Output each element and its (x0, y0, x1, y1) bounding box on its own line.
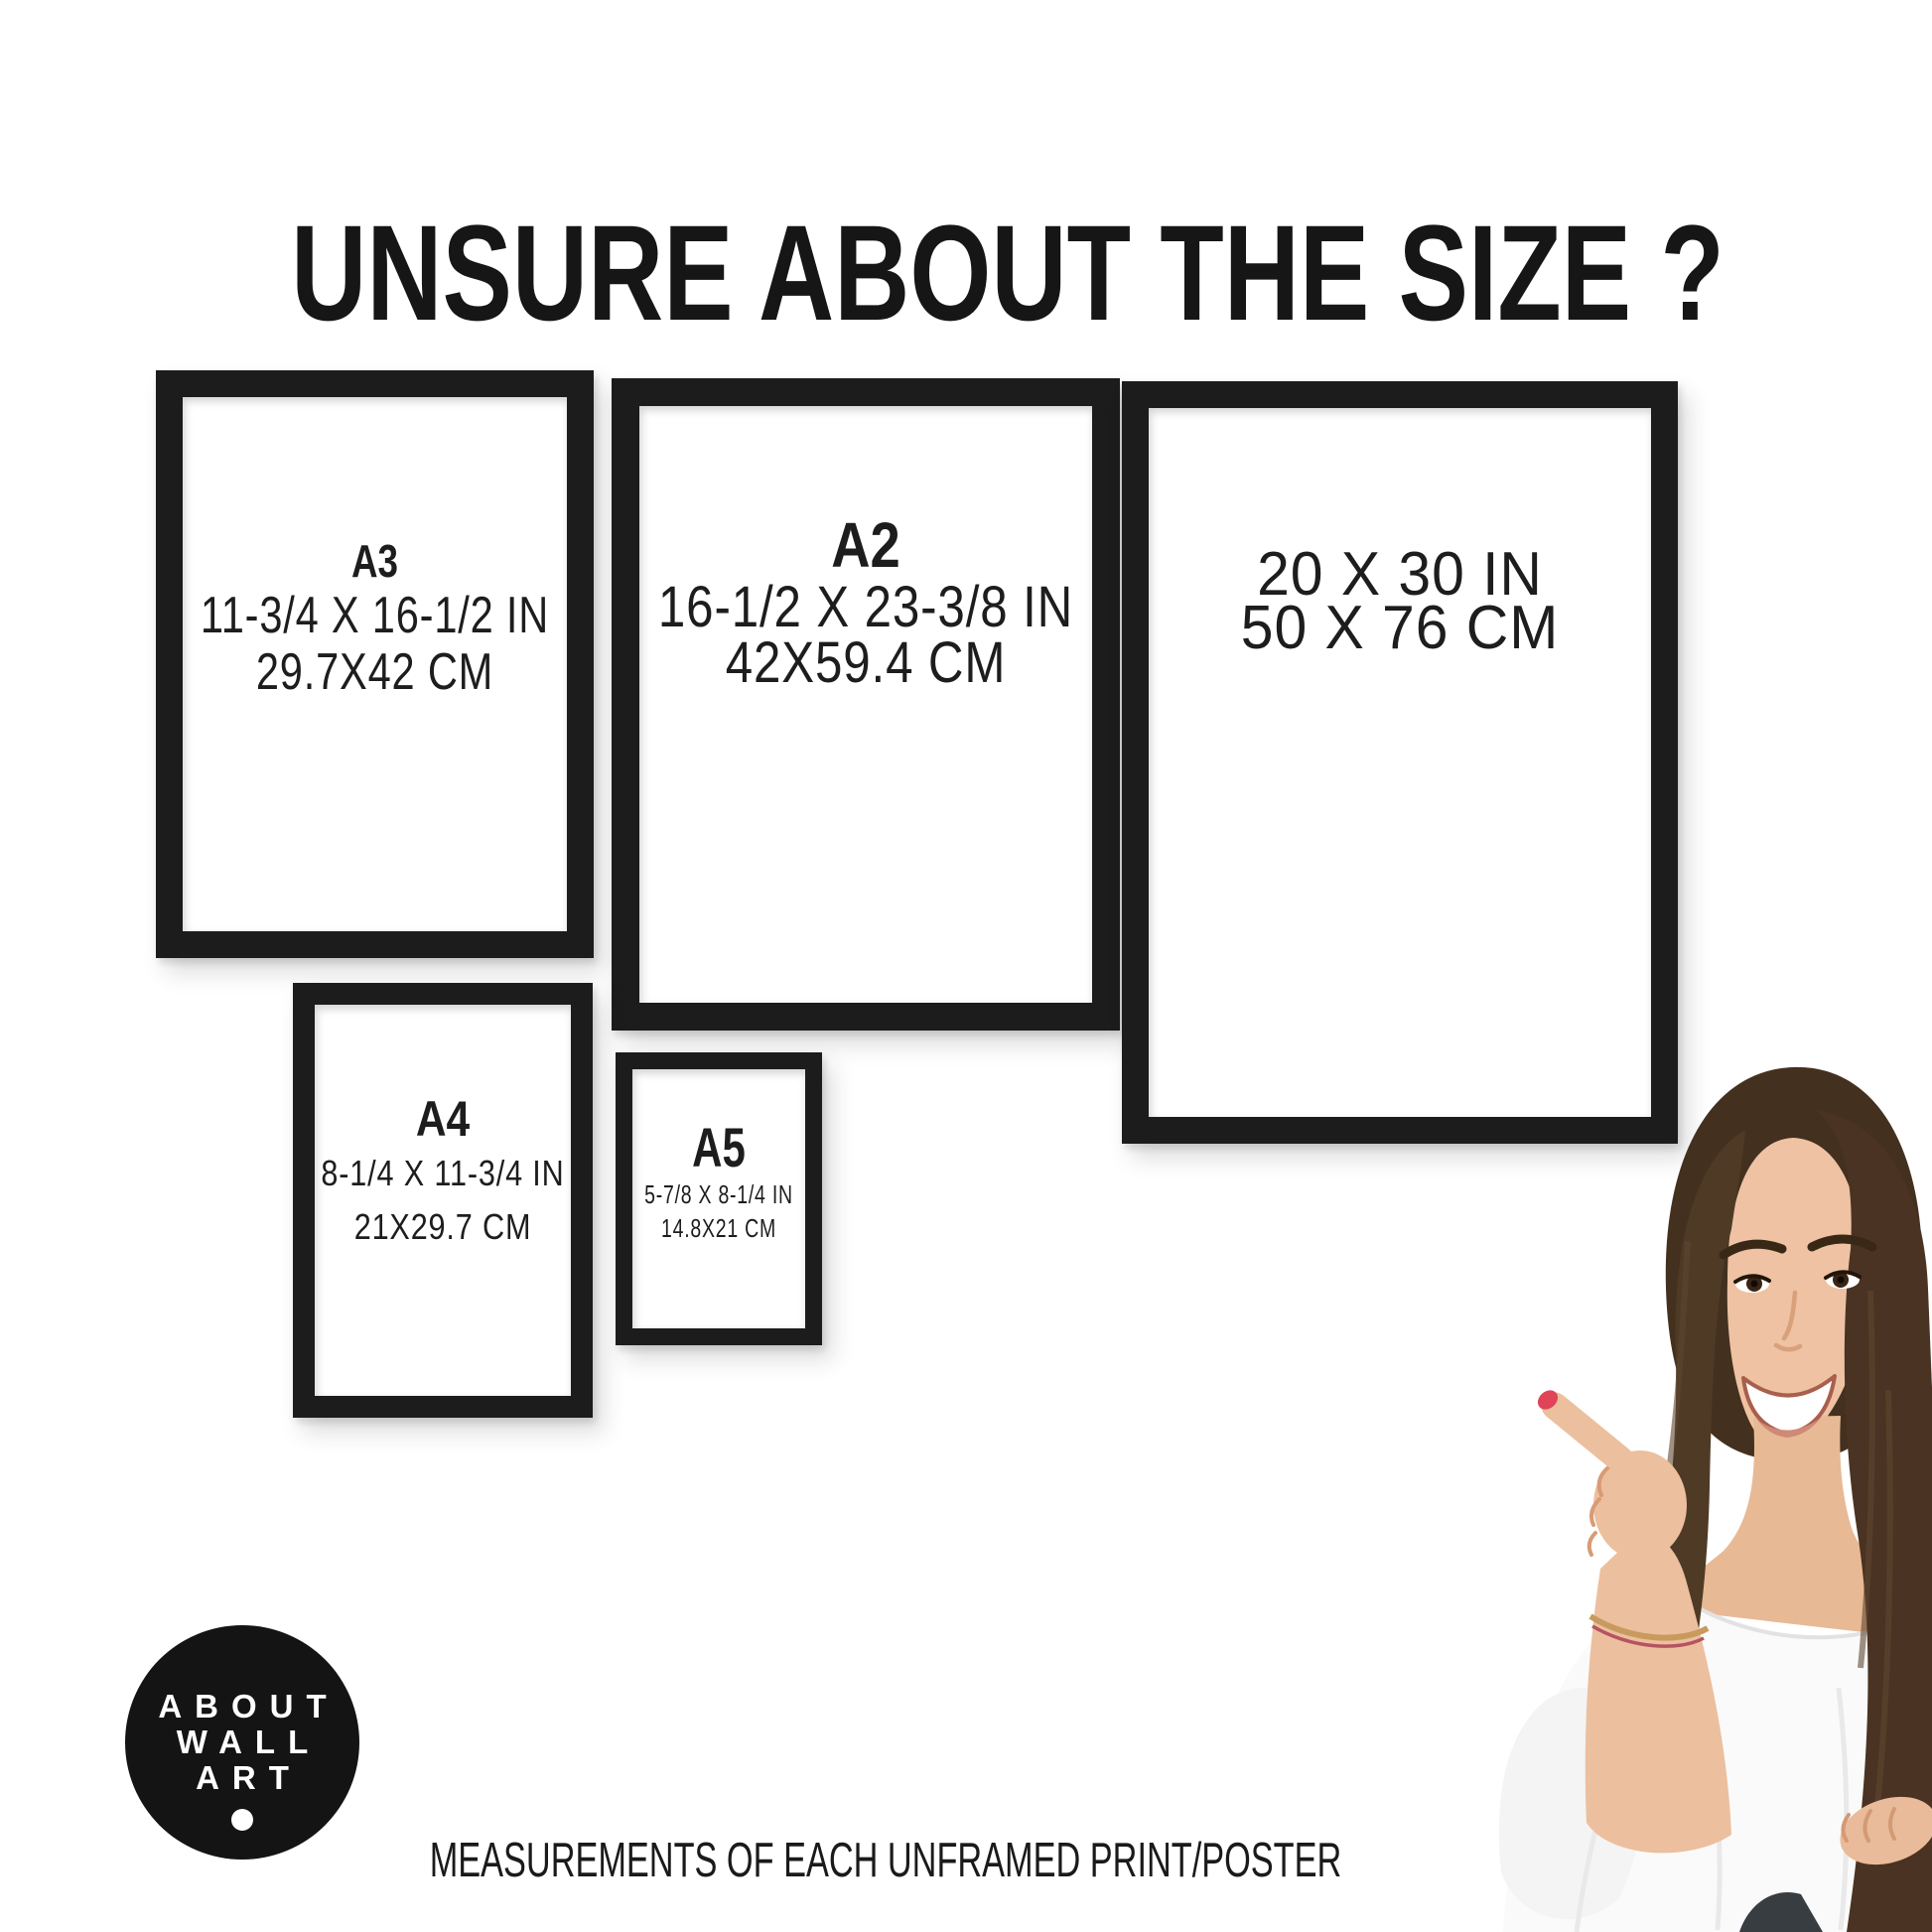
logo-text-line: WALL (164, 1725, 321, 1760)
frame-a2: A2 16-1/2 X 23-3/8 IN 42X59.4 CM (612, 378, 1120, 1031)
footer-caption: MEASUREMENTS OF EACH UNFRAMED PRINT/POST… (209, 1831, 1562, 1890)
frame-cm: 50 X 76 CM (1105, 602, 1696, 655)
frame-20x30-text: 20 X 30 IN 50 X 76 CM (1105, 548, 1696, 655)
logo-text-line: ART (183, 1760, 302, 1796)
frame-cm: 14.8X21 CM (610, 1211, 829, 1245)
frame-inches: 16-1/2 X 23-3/8 IN (622, 580, 1109, 635)
logo-text-line: ABOUT (145, 1689, 339, 1725)
model-face-features (1724, 1239, 1872, 1438)
nail-polish (1534, 1386, 1562, 1413)
frame-size-label: A2 (622, 510, 1109, 580)
frame-inches: 5-7/8 X 8-1/4 IN (610, 1177, 829, 1211)
frame-a4: A4 8-1/4 X 11-3/4 IN 21X29.7 CM (293, 983, 593, 1418)
model-pointing-hand (1534, 1386, 1731, 1853)
frame-cm: 21X29.7 CM (283, 1200, 602, 1254)
frame-inches: 8-1/4 X 11-3/4 IN (283, 1147, 602, 1200)
brand-logo: ABOUT WALL ART (125, 1625, 359, 1860)
frame-inches: 11-3/4 X 16-1/2 IN (174, 588, 577, 644)
model-face (1640, 1138, 1932, 1640)
frame-20x30-mat (1149, 408, 1651, 1117)
frame-a3-text: A3 11-3/4 X 16-1/2 IN 29.7X42 CM (174, 534, 577, 701)
model-blouse (1499, 1587, 1932, 1932)
frame-a3: A3 11-3/4 X 16-1/2 IN 29.7X42 CM (156, 370, 594, 958)
frame-size-label: A5 (610, 1118, 829, 1177)
frame-a2-mat (639, 406, 1092, 1003)
frame-cm: 42X59.4 CM (622, 635, 1109, 691)
page-title: UNSURE ABOUT THE SIZE ? (264, 200, 1751, 348)
size-guide-page: { "header": { "title": "UNSURE ABOUT THE… (0, 0, 1932, 1932)
model-other-hand (1832, 1785, 1932, 1876)
model-neck (1640, 1416, 1932, 1640)
logo-dot (231, 1809, 253, 1831)
frame-size-label: A4 (283, 1091, 602, 1147)
model-jeans (1739, 1892, 1823, 1932)
smile (1743, 1376, 1835, 1434)
model-hair-front (1604, 1110, 1932, 1932)
bracelet (1590, 1616, 1708, 1638)
frame-a4-text: A4 8-1/4 X 11-3/4 IN 21X29.7 CM (283, 1091, 602, 1254)
frame-a5: A5 5-7/8 X 8-1/4 IN 14.8X21 CM (616, 1052, 822, 1345)
model-hair-back (1666, 1067, 1922, 1461)
frame-cm: 29.7X42 CM (174, 644, 577, 701)
frame-size-label: A3 (174, 534, 577, 588)
frame-a2-text: A2 16-1/2 X 23-3/8 IN 42X59.4 CM (622, 510, 1109, 691)
frame-a5-text: A5 5-7/8 X 8-1/4 IN 14.8X21 CM (610, 1118, 829, 1245)
frame-20x30: 20 X 30 IN 50 X 76 CM (1122, 381, 1678, 1144)
